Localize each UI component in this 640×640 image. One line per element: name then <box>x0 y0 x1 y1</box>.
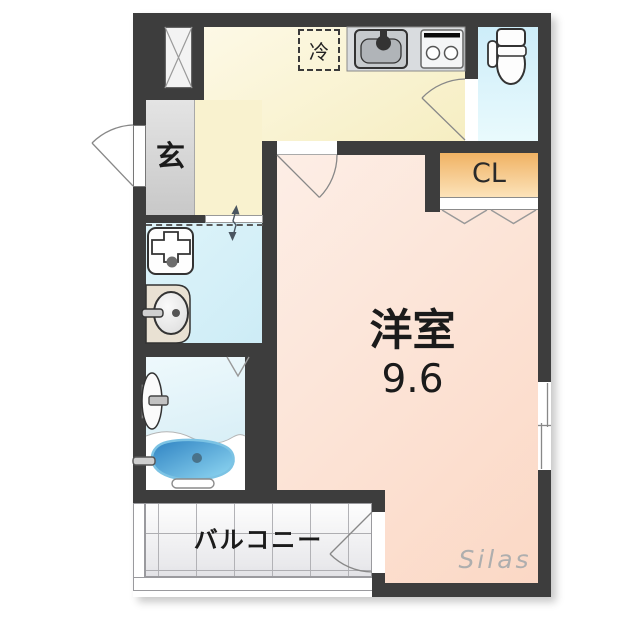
wall-kitchen-toilet <box>465 27 478 79</box>
main-room-name: 洋室 <box>340 309 485 354</box>
closet-label: CL <box>440 160 538 188</box>
refrigerator-box: 冷 <box>298 29 340 71</box>
room-washroom <box>146 223 262 343</box>
entrance-label: 玄 <box>146 141 195 171</box>
closet-door-track <box>440 197 538 210</box>
wall-room-top-stub <box>262 141 277 155</box>
window-opening <box>538 382 551 470</box>
wall-right-upper <box>538 13 551 382</box>
room-corridor <box>195 100 262 223</box>
floor-plan-canvas: 冷 <box>0 0 640 640</box>
main-room-size: 9.6 <box>340 360 485 401</box>
balcony-door-opening <box>372 512 385 573</box>
wall-bottom <box>385 583 551 597</box>
wall-bath-room <box>245 343 277 503</box>
wall-bath-balcony <box>133 490 385 503</box>
entrance-door-swing <box>92 125 133 186</box>
wall-washroom-room <box>262 155 277 355</box>
wall-closet-left <box>425 141 440 212</box>
entrance-step-edge <box>146 215 205 223</box>
toilet-door-opening <box>465 79 478 140</box>
balcony-grid-line <box>146 570 371 571</box>
balcony-railing-bottom <box>133 577 385 591</box>
wall-balcony-room-lower <box>372 573 385 597</box>
wall-shaft-block <box>133 13 204 100</box>
room-door-opening <box>277 141 337 155</box>
wall-closet-top <box>440 141 551 153</box>
wall-balcony-room-upper <box>372 503 385 512</box>
wall-right-lower <box>538 470 551 597</box>
room-toilet <box>478 27 538 141</box>
sliding-door-track <box>146 224 263 226</box>
balcony-label: バルコニー <box>145 528 372 553</box>
watermark: Silas <box>445 545 545 574</box>
entrance-door-leaf <box>133 125 146 187</box>
wall-washroom-bath <box>133 343 245 357</box>
refrigerator-label: 冷 <box>309 36 329 65</box>
room-bathroom <box>146 357 245 490</box>
sliding-door-panel <box>205 215 263 223</box>
